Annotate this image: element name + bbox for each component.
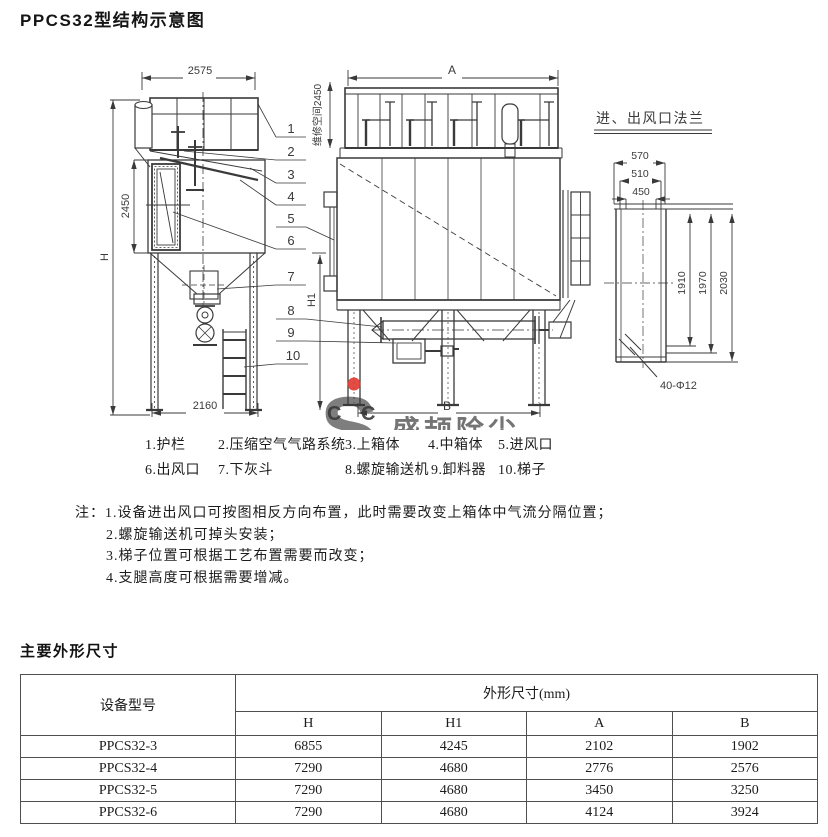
value-cell: 3250 (672, 780, 818, 802)
leader-2: 2 (287, 144, 294, 159)
legend-item-3: 3.上箱体 (345, 434, 400, 454)
legend-item-4: 4.中箱体 (428, 434, 483, 454)
note-line-2: 2.螺旋输送机可掉头安装； (75, 525, 613, 547)
value-cell: 4680 (381, 802, 527, 824)
legend-item-5: 5.进风口 (498, 434, 553, 454)
leader-1: 1 (287, 121, 294, 136)
dim-2160: 2160 (193, 400, 217, 412)
watermark-company-text: 盛颉除尘 (392, 414, 520, 430)
legend-item-6: 6.出风口 (145, 459, 200, 479)
value-cell: 4680 (381, 780, 527, 802)
value-cell: 2576 (672, 758, 818, 780)
model-header-cell: 设备型号 (21, 675, 236, 736)
value-cell: 7290 (236, 802, 382, 824)
dim-450: 450 (632, 186, 650, 198)
leader-7: 7 (287, 269, 294, 284)
note-line-1: 注：1.设备进出风口可按图相反方向布置，此时需要改变上箱体中气流分隔位置； (75, 503, 613, 525)
model-cell: PPCS32-4 (21, 758, 236, 780)
legend-item-1: 1.护栏 (145, 434, 186, 454)
model-cell: PPCS32-6 (21, 802, 236, 824)
leader-lines (173, 104, 396, 367)
leader-5: 5 (287, 211, 294, 226)
dim-2575: 2575 (188, 65, 212, 77)
notes-prefix: 注： (75, 506, 105, 521)
dim-510: 510 (631, 168, 649, 180)
span-header-cell: 外形尺寸(mm) (236, 675, 818, 712)
sub-header-H1: H1 (381, 712, 527, 736)
legend-item-2: 2.压缩空气气路系统 (218, 434, 346, 454)
dimensions-section-title: 主要外形尺寸 (20, 640, 119, 661)
table-row: PPCS32-4 7290 4680 2776 2576 (21, 758, 818, 780)
table-row: PPCS32-5 7290 4680 3450 3250 (21, 780, 818, 802)
model-cell: PPCS32-5 (21, 780, 236, 802)
dim-2450: 2450 (120, 194, 132, 218)
value-cell: 4680 (381, 758, 527, 780)
watermark-cc-letters: C C (327, 403, 382, 425)
value-cell: 1902 (672, 736, 818, 758)
dim-570: 570 (631, 150, 649, 162)
sub-header-A: A (527, 712, 673, 736)
watermark: S C C 盛颉除尘 (320, 378, 520, 431)
legend-item-8: 8.螺旋输送机 (345, 459, 429, 479)
leader-numbers: 1 2 3 4 5 6 7 8 9 10 (286, 121, 300, 363)
leader-6: 6 (287, 233, 294, 248)
notes-block: 注：1.设备进出风口可按图相反方向布置，此时需要改变上箱体中气流分隔位置； 2.… (75, 503, 613, 589)
dim-A: A (448, 63, 456, 77)
note-line-4: 4.支腿高度可根据需要增减。 (75, 568, 613, 590)
note-line-3: 3.梯子位置可根据工艺布置需要而改变； (75, 546, 613, 568)
dim-H: H (99, 253, 111, 261)
dim-B: B (443, 399, 451, 413)
dim-clearance: 维修空间2450 (311, 83, 324, 146)
leader-4: 4 (287, 189, 294, 204)
note-text-1: 1.设备进出风口可按图相反方向布置，此时需要改变上箱体中气流分隔位置； (105, 506, 613, 521)
table-row: PPCS32-3 6855 4245 2102 1902 (21, 736, 818, 758)
dim-H1: H1 (306, 293, 318, 307)
flange-view-title: 进、出风口法兰 (596, 110, 705, 126)
table-row: PPCS32-6 7290 4680 4124 3924 (21, 802, 818, 824)
document-page: PPCS32型结构示意图 (0, 0, 828, 837)
bolt-holes-label: 40-Φ12 (660, 380, 697, 392)
leader-10: 10 (286, 348, 300, 363)
value-cell: 6855 (236, 736, 382, 758)
legend-item-9: 9.卸料器 (431, 459, 486, 479)
sub-header-H: H (236, 712, 382, 736)
value-cell: 7290 (236, 758, 382, 780)
table-header-row-1: 设备型号 外形尺寸(mm) (21, 675, 818, 712)
value-cell: 3450 (527, 780, 673, 802)
dim-1910: 1910 (676, 271, 688, 295)
model-cell: PPCS32-3 (21, 736, 236, 758)
leader-8: 8 (287, 303, 294, 318)
value-cell: 4245 (381, 736, 527, 758)
side-view-geometry (135, 92, 265, 410)
dim-2030: 2030 (718, 271, 730, 295)
legend-item-10: 10.梯子 (498, 459, 546, 479)
value-cell: 2102 (527, 736, 673, 758)
dimensions-table: 设备型号 外形尺寸(mm) H H1 A B PPCS32-3 6855 424… (20, 674, 818, 824)
dim-1970: 1970 (697, 271, 709, 295)
sub-header-B: B (672, 712, 818, 736)
legend-item-7: 7.下灰斗 (218, 459, 273, 479)
value-cell: 2776 (527, 758, 673, 780)
value-cell: 7290 (236, 780, 382, 802)
value-cell: 4124 (527, 802, 673, 824)
value-cell: 3924 (672, 802, 818, 824)
flange-view-geometry (594, 130, 733, 377)
structure-diagram: 1 2 3 4 5 6 7 8 9 10 2575 H 2450 2160 H1… (0, 0, 828, 430)
leader-9: 9 (287, 325, 294, 340)
front-view-geometry (324, 88, 590, 405)
leader-3: 3 (287, 167, 294, 182)
